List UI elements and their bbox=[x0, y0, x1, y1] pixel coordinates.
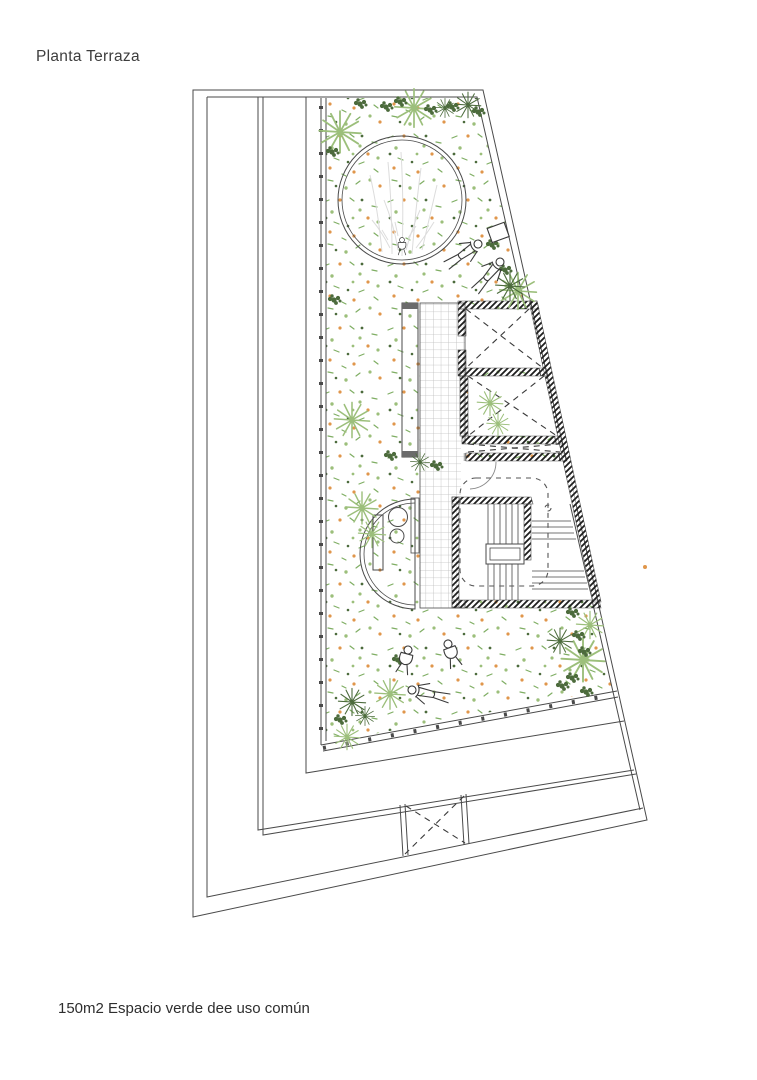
floor-plan-svg bbox=[0, 0, 757, 1080]
plan-caption: 150m2 Espacio verde dee uso común bbox=[58, 1000, 310, 1017]
core-walls bbox=[452, 301, 601, 608]
page: Planta Terraza bbox=[0, 0, 757, 1080]
stray-orange-dot bbox=[643, 565, 647, 569]
